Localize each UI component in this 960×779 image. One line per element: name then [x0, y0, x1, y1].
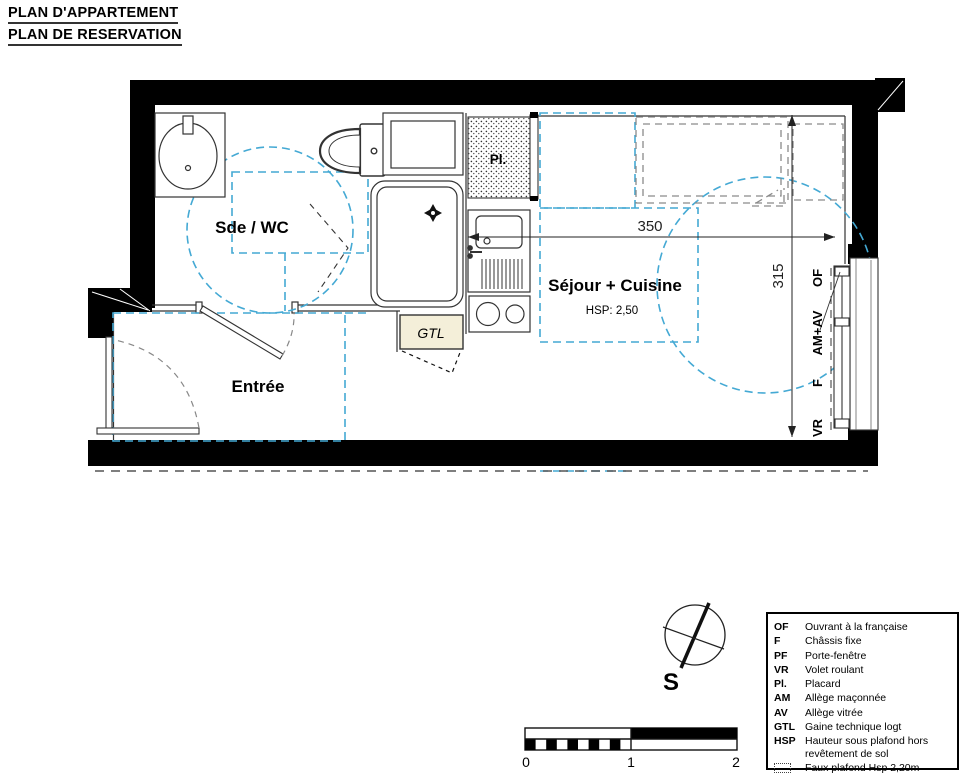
legend-label: Hauteur sous plafond hors revêtement de … [805, 735, 952, 761]
shower-tray [371, 181, 463, 307]
label-living: Séjour + Cuisine [548, 276, 682, 295]
legend-abbr: AM [774, 692, 805, 705]
faux-plafond-living [540, 208, 698, 342]
legend-label: Gaine technique logt [805, 721, 952, 734]
bed-outline [636, 117, 788, 203]
legend-label: Châssis fixe [805, 635, 952, 648]
label-of: OF [810, 269, 825, 287]
legend-label: Placard [805, 678, 952, 691]
compass-south-label: S [663, 669, 679, 696]
shutter-box [850, 258, 878, 430]
legend-box: OF Ouvrant à la française F Châssis fixe… [766, 612, 959, 770]
bed-inner-outline [643, 124, 781, 196]
label-entry: Entrée [232, 377, 285, 396]
label-living-height: HSP: 2,50 [586, 305, 638, 317]
legend-abbr: VR [774, 664, 805, 677]
toilet [320, 124, 385, 176]
cooktop [469, 296, 530, 332]
floor-plan-page: PLAN D'APPARTEMENT PLAN DE RESERVATION [0, 0, 960, 779]
legend-abbr: Pl. [774, 678, 805, 691]
faux-plafond-kitchen-top [540, 113, 635, 208]
gtl-duct [400, 315, 463, 373]
legend-abbr: OF [774, 621, 805, 634]
scale-tick-0: 0 [522, 754, 530, 770]
legend-abbr: AV [774, 707, 805, 720]
dim-350-label: 350 [637, 218, 662, 235]
kitchen-sink [468, 210, 530, 292]
window-labels: OF AM+AV F VR [810, 269, 825, 437]
legend-row-pl: Pl. Placard [774, 678, 952, 691]
dim-315-label: 315 [770, 263, 787, 288]
legend-row-pf: PF Porte-fenêtre [774, 650, 952, 663]
side-table-outline [793, 124, 843, 200]
dimension-315: 315 [770, 115, 796, 437]
faux-plafond-bathroom [232, 172, 368, 253]
faux-plafond-entry [113, 313, 345, 441]
legend-row-vr: VR Volet roulant [774, 664, 952, 677]
scale-bar: 0 1 2 [522, 728, 740, 770]
compass: S [663, 603, 725, 696]
scale-tick-1: 1 [627, 754, 635, 770]
legend-row-faux-plafond: Faux plafond Hsp 2,20m [774, 762, 952, 777]
legend-row-hsp: HSP Hauteur sous plafond hors revêtement… [774, 735, 952, 761]
entry-door [97, 337, 199, 434]
label-am-av: AM+AV [810, 310, 825, 355]
legend-label: Porte-fenêtre [805, 650, 952, 663]
legend-row-gtl: GTL Gaine technique logt [774, 721, 952, 734]
legend-label: Ouvrant à la française [805, 621, 952, 634]
legend-row-f: F Châssis fixe [774, 635, 952, 648]
label-f: F [810, 379, 825, 387]
label-closet: Pl. [490, 152, 507, 167]
legend-row-am: AM Allège maçonnée [774, 692, 952, 705]
legend-row-av: AV Allège vitrée [774, 707, 952, 720]
legend-abbr: PF [774, 650, 805, 663]
legend-label: Faux plafond Hsp 2,20m [805, 762, 952, 775]
legend-row-of: OF Ouvrant à la française [774, 621, 952, 634]
washbasin [155, 113, 225, 197]
legend-abbr: GTL [774, 721, 805, 734]
legend-label: Allège maçonnée [805, 692, 952, 705]
legend-label: Allège vitrée [805, 707, 952, 720]
scale-tick-2: 2 [732, 754, 740, 770]
legend-label: Volet roulant [805, 664, 952, 677]
washing-machine-space [383, 113, 463, 175]
faux-plafond-icon [774, 762, 805, 777]
label-gtl: GTL [417, 325, 444, 341]
legend-abbr: F [774, 635, 805, 648]
label-vr: VR [810, 418, 825, 437]
label-bathroom: Sde / WC [215, 218, 289, 237]
furniture-outlines [636, 117, 843, 206]
legend-abbr: HSP [774, 735, 805, 748]
window-assembly [820, 258, 878, 432]
